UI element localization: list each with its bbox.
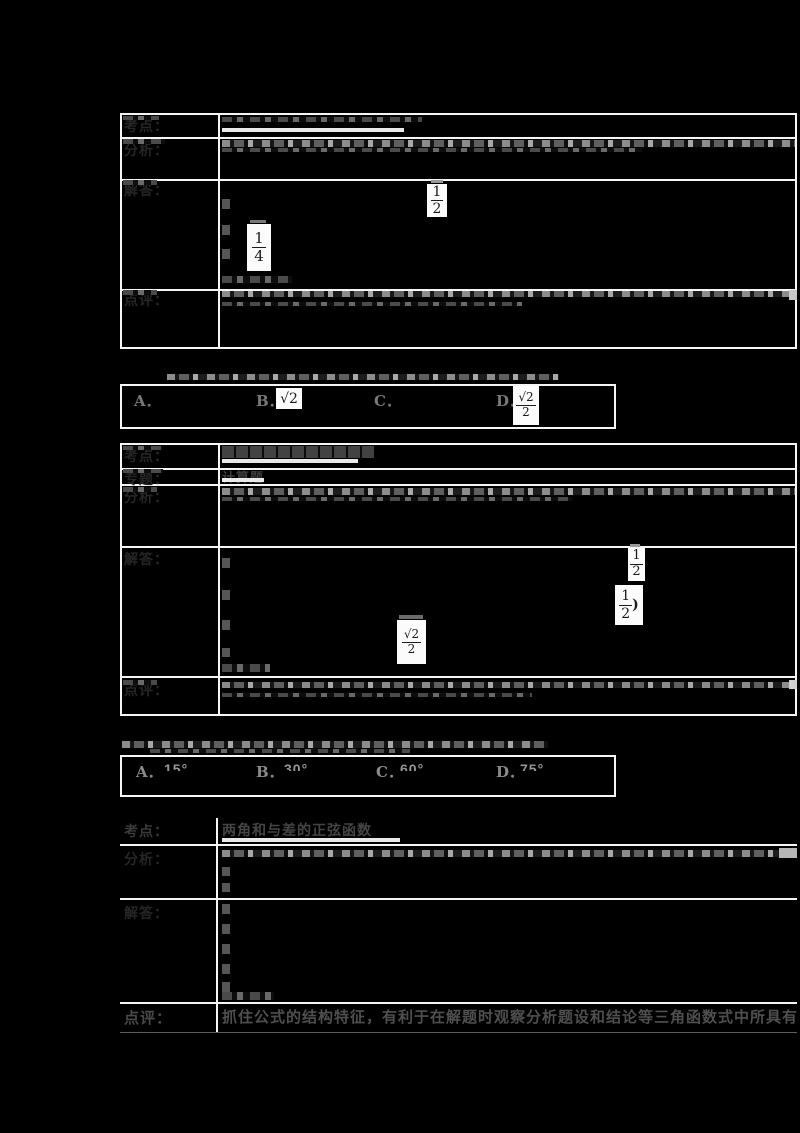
- fraction-numerator: 1: [252, 230, 266, 248]
- text-fragment: [123, 116, 159, 120]
- text-fragment: [123, 469, 163, 473]
- text-fragment: [789, 680, 797, 689]
- formula-sqrt2: √2: [276, 388, 302, 409]
- text-fragment: [222, 488, 795, 495]
- text-fragment: [222, 682, 792, 688]
- text-fragment: [222, 590, 230, 600]
- option-letter: C．: [376, 761, 403, 782]
- formula-one-half: 12: [427, 184, 447, 217]
- paren-suffix: ): [632, 597, 639, 613]
- option-value: 75°: [520, 761, 554, 771]
- text-fragment: [123, 180, 157, 185]
- text-fragment: [222, 148, 642, 152]
- text-fragment: [222, 982, 230, 992]
- fraction-denominator: 4: [252, 248, 266, 265]
- fraction-denominator: 2: [431, 201, 444, 217]
- formula-sqrt2-over-2: √22: [513, 386, 539, 425]
- text-fragment: [123, 446, 163, 450]
- text-fragment: [222, 249, 230, 259]
- text-fragment: [222, 117, 422, 122]
- option-letter: A．: [134, 390, 161, 411]
- text-fragment: [630, 544, 640, 547]
- text-fragment: [222, 867, 230, 876]
- text-fragment: [123, 290, 157, 295]
- content-cell: [218, 900, 797, 1002]
- option-letter: A．: [136, 761, 163, 782]
- option-value: 15°: [164, 761, 198, 771]
- text-fragment: [222, 992, 274, 1000]
- option-value: 30°: [284, 761, 318, 771]
- text-image-underline: [222, 459, 358, 463]
- fraction-numerator: 1: [630, 549, 642, 565]
- text-fragment: [222, 276, 292, 283]
- fraction-denominator: 2: [619, 606, 632, 622]
- text-fragment: [222, 693, 532, 697]
- text-fragment: [123, 680, 157, 685]
- formula-one-half: 12: [628, 548, 645, 581]
- text-image-underline: [222, 478, 264, 482]
- dianping-text: 抓住公式的结构特征，有利于在解题时观察分析题设和结论等三角函数式中所具有的相似性: [222, 1006, 797, 1026]
- fraction-denominator: 2: [630, 565, 642, 580]
- text-fragment: [431, 180, 443, 183]
- kaodian-text: 两角和与差的正弦函数: [222, 820, 372, 840]
- text-fragment: [222, 850, 795, 857]
- question-text-fragment: [122, 741, 548, 748]
- option-value: √2: [280, 391, 298, 407]
- text-fragment: [222, 664, 270, 672]
- question-text-fragment: [167, 374, 559, 380]
- fraction-numerator: 1: [619, 588, 632, 605]
- text-fragment: [123, 487, 157, 492]
- option-value: 60°: [400, 761, 434, 771]
- text-fragment: [222, 904, 230, 914]
- text-fragment: [222, 225, 230, 235]
- option-letter: C．: [374, 390, 401, 411]
- text-fragment: [222, 291, 793, 297]
- row-label-jieda: 解答：: [124, 903, 169, 923]
- content-cell: [220, 486, 795, 546]
- text-fragment: [222, 302, 522, 306]
- options-box-1: [120, 384, 616, 429]
- content-cell: [220, 291, 795, 347]
- table-row: [122, 291, 795, 347]
- content-cell: [220, 181, 795, 289]
- fraction-denominator: 2: [520, 406, 532, 420]
- formula-sqrt2-over-2: √22: [397, 620, 426, 664]
- content-cell: [220, 548, 795, 676]
- text-image-underline: [222, 838, 400, 842]
- text-fragment: [222, 199, 230, 209]
- text-fragment: [779, 848, 797, 858]
- question-text-fragment: [150, 749, 410, 753]
- formula-one-half-paren: 12): [615, 585, 643, 625]
- kaodian-text-fragment: [222, 446, 374, 458]
- fraction-numerator: 1: [431, 184, 444, 201]
- row-label-jieda: 解答：: [124, 549, 169, 569]
- text-image-underline: [222, 128, 404, 132]
- text-fragment: [222, 620, 230, 630]
- text-fragment: [222, 497, 572, 501]
- text-fragment: [222, 558, 230, 568]
- document-page: 考点： 分析： 解答： 点评： 12 14 A． B． C． D． √2 √22: [0, 0, 800, 1133]
- text-fragment: [250, 220, 266, 223]
- text-fragment: [222, 924, 230, 934]
- option-letter: B．: [256, 761, 284, 782]
- text-fragment: [789, 290, 797, 300]
- text-fragment: [222, 883, 230, 892]
- fraction-denominator: 2: [406, 643, 418, 657]
- row-label-kaodian: 考点：: [124, 821, 169, 841]
- row-label-dianping: 点评：: [124, 1007, 172, 1028]
- text-fragment: [222, 964, 230, 974]
- table-row: [122, 486, 795, 548]
- text-fragment: [222, 648, 230, 657]
- text-fragment: [222, 140, 795, 147]
- table-row: [122, 181, 795, 291]
- text-fragment: [222, 944, 230, 954]
- text-fragment: [399, 615, 423, 619]
- fraction-numerator: √2: [402, 628, 421, 643]
- fraction-numerator: √2: [516, 391, 535, 406]
- content-cell: [220, 470, 795, 484]
- zhuanti-text: 计算题: [222, 467, 264, 486]
- formula-one-quarter: 14: [247, 224, 271, 271]
- text-fragment: [123, 139, 165, 144]
- row-label-fenxi: 分析：: [124, 849, 169, 869]
